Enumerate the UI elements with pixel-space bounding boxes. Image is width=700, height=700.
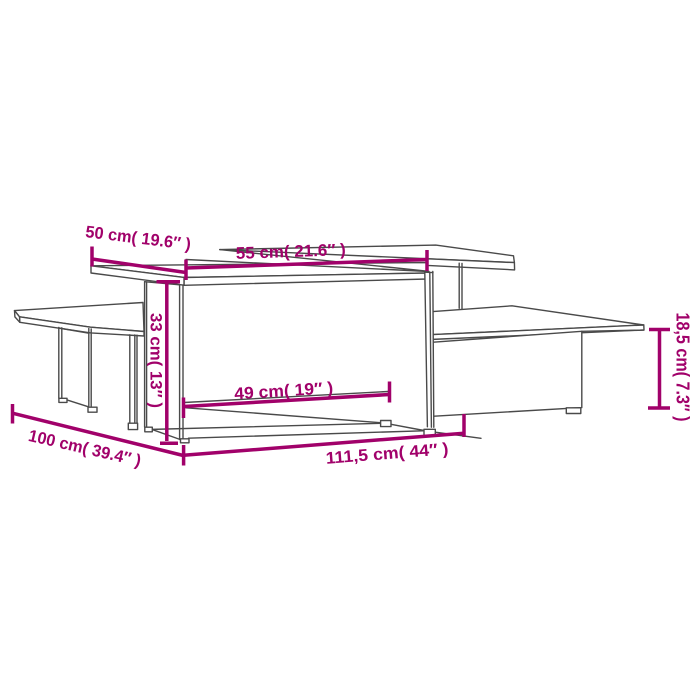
svg-text:18,5 cm( 7.3″ ): 18,5 cm( 7.3″ ) (672, 313, 692, 422)
svg-text:33 cm( 13″ ): 33 cm( 13″ ) (147, 313, 166, 408)
svg-text:55 cm( 21.6″ ): 55 cm( 21.6″ ) (236, 240, 347, 263)
